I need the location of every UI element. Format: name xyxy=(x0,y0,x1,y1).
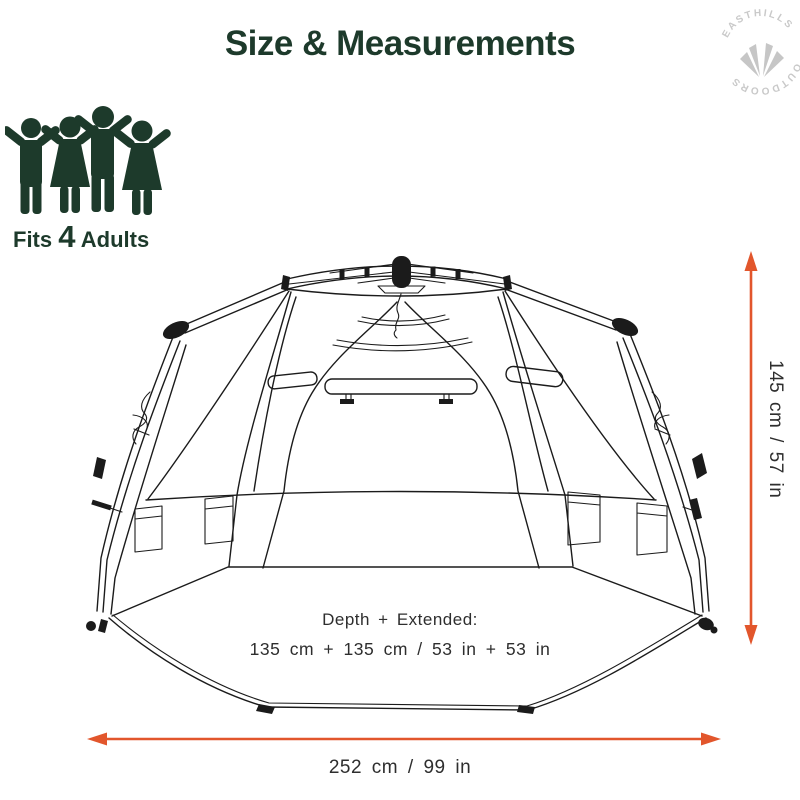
height-arrow xyxy=(745,251,758,645)
stake-front-right xyxy=(517,705,535,714)
tent-roof xyxy=(148,281,654,568)
tent-diagram xyxy=(0,0,800,800)
pole-clip-right xyxy=(692,453,707,479)
corner-knob-left xyxy=(160,317,192,342)
depth-dimension-title: Depth + Extended: xyxy=(0,610,800,630)
depth-dimension-value: 135 cm + 135 cm / 53 in + 53 in xyxy=(0,639,800,660)
tent-pole-left xyxy=(92,337,186,614)
vent-arc-upper xyxy=(358,315,449,326)
width-dimension-label: 252 cm / 99 in xyxy=(0,757,800,779)
pull-cord xyxy=(394,294,401,338)
tent-interior xyxy=(112,366,702,616)
corner-knob-right xyxy=(609,314,641,339)
pocket xyxy=(637,503,667,555)
stake-front-left xyxy=(256,704,275,714)
rolled-door-bar xyxy=(325,379,477,394)
height-dimension-label: 145 cm / 57 in xyxy=(764,360,786,550)
tent-pole-right xyxy=(617,334,709,614)
vent-arc-lower xyxy=(333,338,472,351)
pocket xyxy=(568,492,600,545)
infographic-page: Size & Measurements EASTHILLS OUTDOORS xyxy=(0,0,800,800)
hub-knob xyxy=(392,256,411,288)
pocket xyxy=(135,506,162,552)
width-arrow xyxy=(87,733,721,746)
rolled-flap-right xyxy=(505,366,563,388)
pocket xyxy=(205,496,233,544)
pole-clip-left xyxy=(93,457,106,479)
depth-dimension-block: Depth + Extended: 135 cm + 135 cm / 53 i… xyxy=(0,610,800,660)
